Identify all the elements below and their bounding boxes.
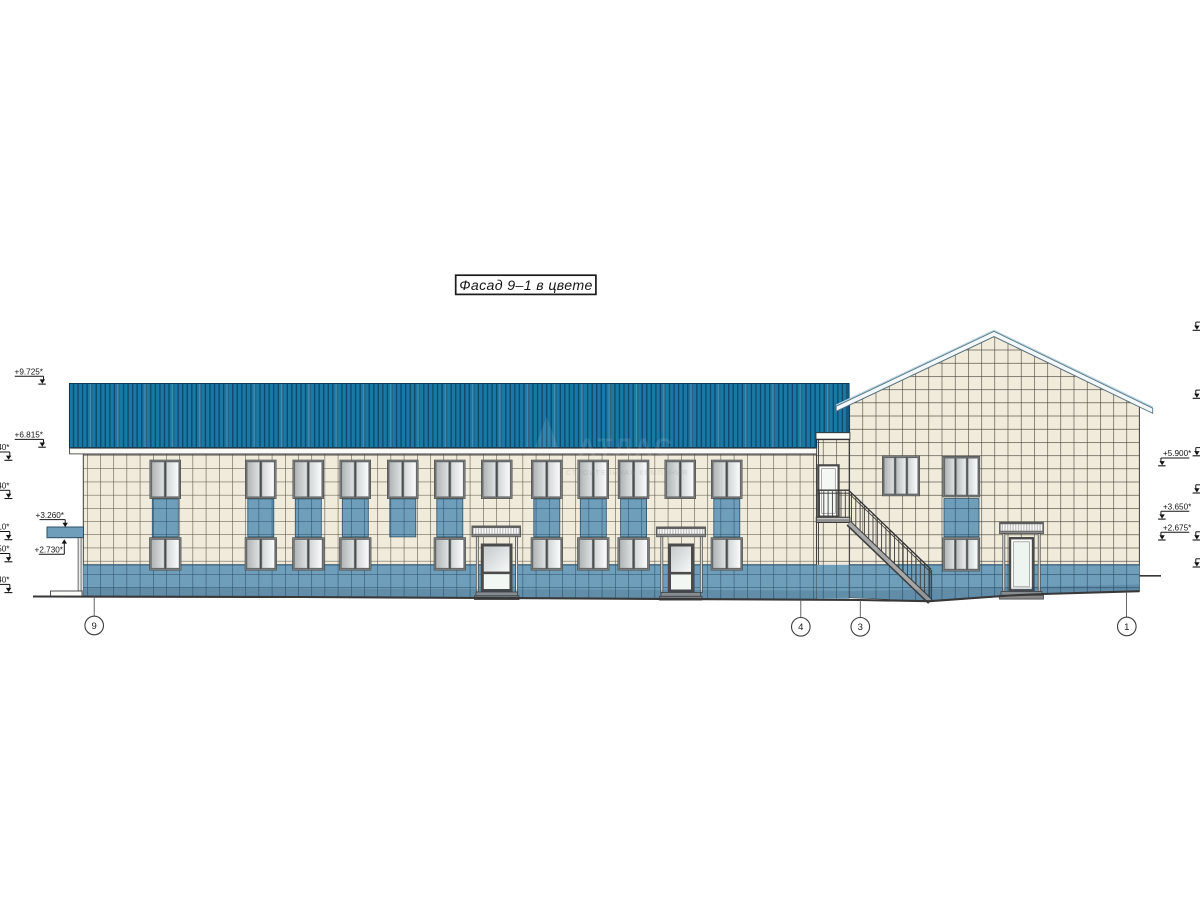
svg-text:+2.675*: +2.675* xyxy=(1163,523,1192,532)
svg-text:+9.725*: +9.725* xyxy=(15,368,44,377)
svg-text:+2.730*: +2.730* xyxy=(35,545,64,554)
svg-text:1: 1 xyxy=(1124,622,1129,633)
svg-text:40*: 40* xyxy=(0,482,10,491)
svg-text:10*: 10* xyxy=(0,523,10,532)
svg-text:+6.815*: +6.815* xyxy=(15,431,44,440)
svg-text:+3.650*: +3.650* xyxy=(1163,503,1192,512)
svg-text:+3.260*: +3.260* xyxy=(36,511,65,520)
svg-text:40*: 40* xyxy=(0,576,10,585)
svg-text:9: 9 xyxy=(92,621,97,632)
svg-text:40*: 40* xyxy=(0,443,10,452)
svg-text:Фасад 9–1 в цвете: Фасад 9–1 в цвете xyxy=(459,278,593,294)
svg-text:3: 3 xyxy=(858,622,863,633)
svg-text:АТЛАС: АТЛАС xyxy=(578,434,675,462)
svg-text:СТРОИТЕЛЬНАЯ КОМПАНИЯ: СТРОИТЕЛЬНАЯ КОМПАНИЯ xyxy=(566,470,688,477)
svg-text:50*: 50* xyxy=(0,545,10,554)
svg-text:4: 4 xyxy=(798,622,803,633)
svg-text:+5.900*: +5.900* xyxy=(1163,449,1192,458)
